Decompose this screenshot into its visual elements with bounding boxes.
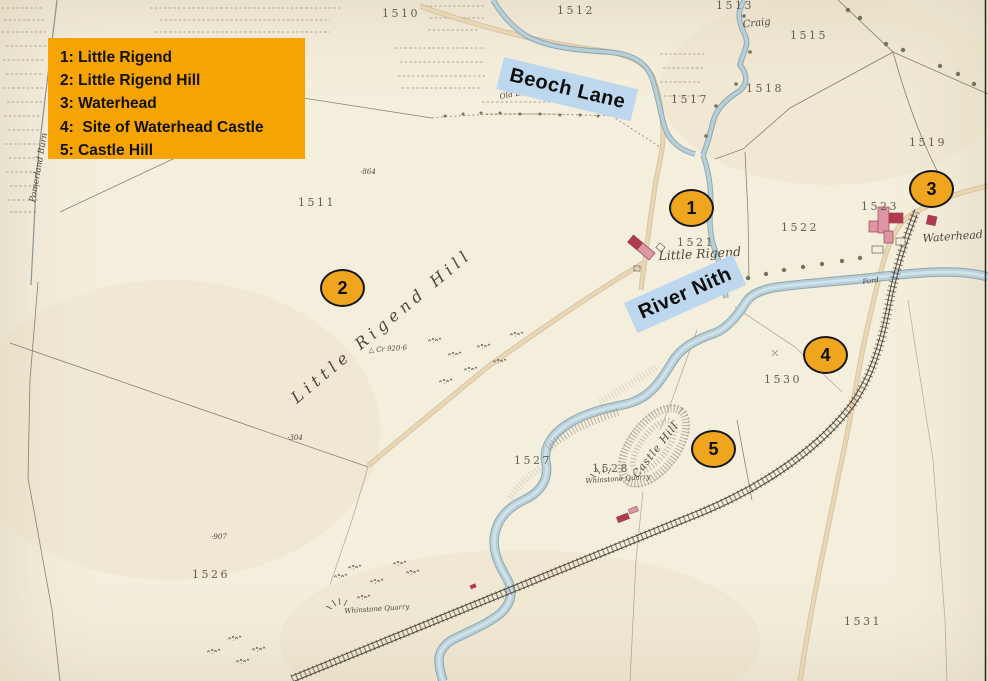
legend-item: 3: Waterhead bbox=[60, 92, 293, 115]
parcel-number: 1531 bbox=[844, 615, 882, 628]
place-name-label: ·864 bbox=[360, 168, 376, 176]
annotated-map-screenshot: 1510151215131515151115171518151915211522… bbox=[0, 0, 988, 681]
parcel-number: 1517 bbox=[671, 93, 709, 106]
map-marker-2: 2 bbox=[320, 269, 365, 307]
parcel-number: 1515 bbox=[790, 29, 828, 42]
legend-item: 1: Little Rigend bbox=[60, 46, 293, 69]
parcel-number: 1511 bbox=[298, 196, 336, 209]
legend-box: 1: Little Rigend 2: Little Rigend Hill 3… bbox=[48, 38, 305, 159]
legend-item: 4: Site of Waterhead Castle bbox=[60, 116, 293, 139]
parcel-number: 1523 bbox=[861, 200, 899, 213]
map-marker-4: 4 bbox=[803, 336, 848, 374]
place-name-label: ·907 bbox=[211, 533, 227, 541]
parcel-number: 1519 bbox=[909, 136, 947, 149]
parcel-number: 1530 bbox=[764, 373, 802, 386]
place-name-label: ·304 bbox=[287, 434, 303, 442]
parcel-number: 1522 bbox=[781, 221, 819, 234]
map-marker-1: 1 bbox=[669, 189, 714, 227]
legend-item: 5: Castle Hill bbox=[60, 139, 293, 162]
parcel-number: 1510 bbox=[382, 7, 420, 20]
map-marker-5: 5 bbox=[691, 430, 736, 468]
place-name-label: Waterhead bbox=[922, 228, 983, 245]
parcel-number: 1528 bbox=[592, 462, 630, 475]
place-name-label: Pomerland Burn bbox=[28, 132, 50, 204]
parcel-number: 1526 bbox=[192, 568, 230, 581]
place-name-label: △ Cr 920·6 bbox=[368, 344, 408, 355]
parcel-number: 1512 bbox=[557, 4, 595, 17]
parcel-number: 1527 bbox=[514, 454, 552, 467]
parcel-number: 1513 bbox=[716, 0, 754, 12]
parcel-number: 1518 bbox=[746, 82, 784, 95]
map-marker-3: 3 bbox=[909, 170, 954, 208]
legend-item: 2: Little Rigend Hill bbox=[60, 69, 293, 92]
